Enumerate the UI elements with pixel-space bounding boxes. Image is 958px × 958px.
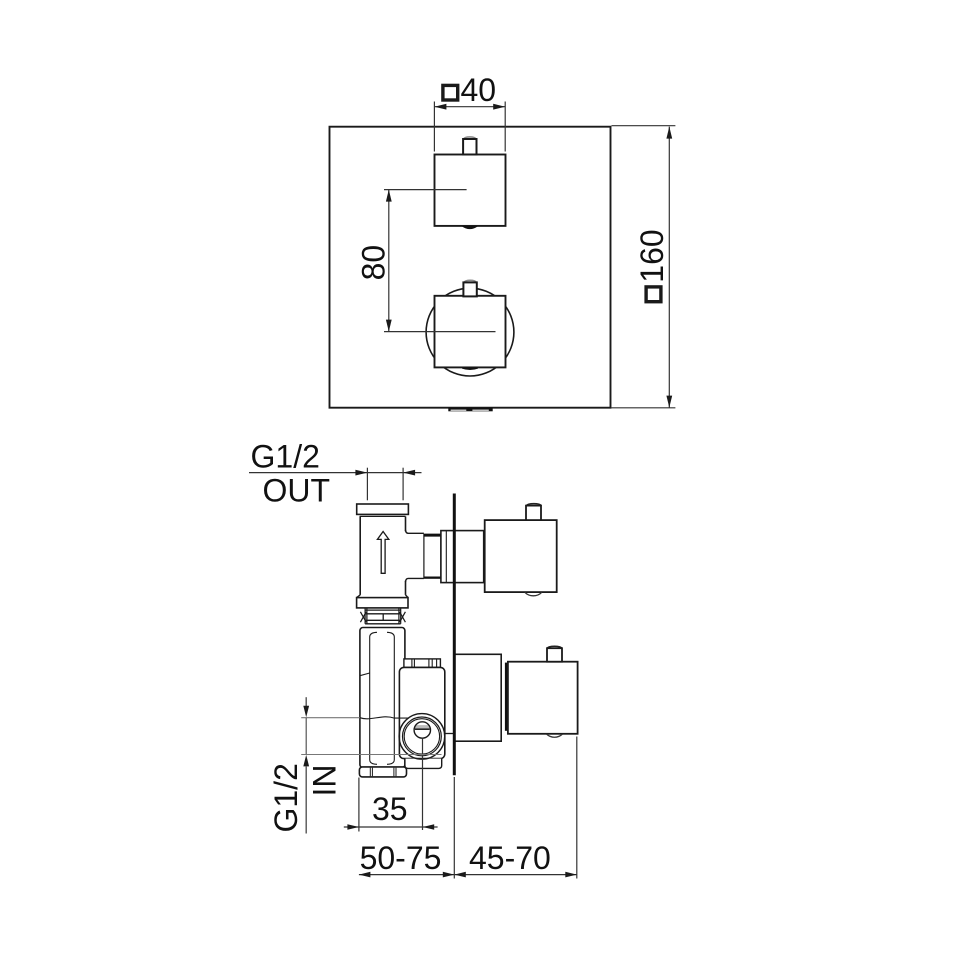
svg-text:160: 160 <box>634 229 670 282</box>
svg-text:35: 35 <box>372 791 408 827</box>
svg-text:IN: IN <box>307 765 343 797</box>
svg-text:50-75: 50-75 <box>360 840 442 876</box>
svg-text:40: 40 <box>461 72 497 108</box>
svg-text:G1/2: G1/2 <box>268 763 304 832</box>
svg-text:45-70: 45-70 <box>469 840 551 876</box>
svg-text:80: 80 <box>355 245 391 281</box>
svg-text:OUT: OUT <box>263 473 331 509</box>
svg-text:G1/2: G1/2 <box>251 439 320 475</box>
